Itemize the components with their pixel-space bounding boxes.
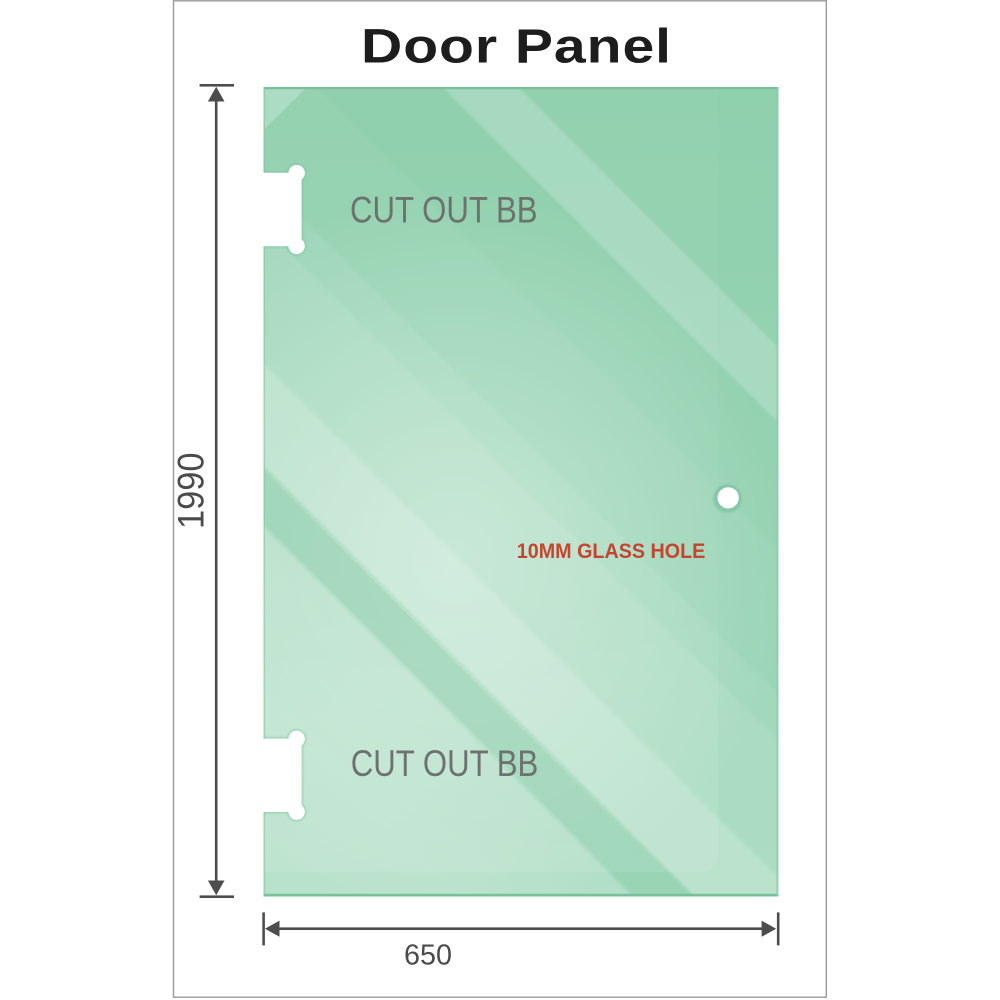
svg-text:CUT OUT BB: CUT OUT BB (350, 189, 538, 230)
svg-text:650: 650 (404, 940, 452, 972)
svg-text:1990: 1990 (171, 453, 212, 530)
svg-text:10MM GLASS HOLE: 10MM GLASS HOLE (517, 539, 706, 563)
svg-text:CUT OUT BB: CUT OUT BB (351, 743, 539, 784)
svg-text:Door Panel: Door Panel (361, 19, 672, 73)
